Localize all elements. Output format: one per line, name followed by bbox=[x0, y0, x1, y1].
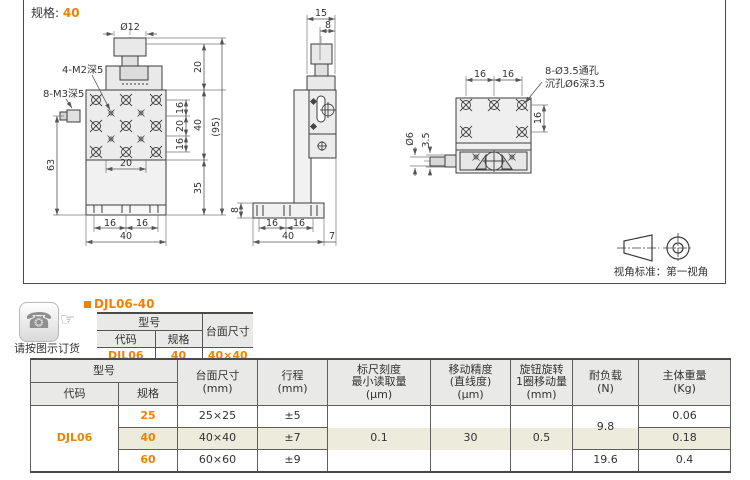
col-header-spec: 规格 bbox=[155, 331, 202, 348]
phone-order-card: ☎ bbox=[19, 302, 59, 342]
hole-note: 8-Ø3.5通孔 bbox=[545, 65, 599, 77]
bullet-square-icon bbox=[84, 301, 91, 308]
projection-note: 视角标准：第一视角 bbox=[614, 265, 709, 278]
dim-label: 16 bbox=[533, 112, 544, 124]
phone-icon: ☎ bbox=[25, 311, 52, 333]
col-header-scale: 标尺刻度 最小读取量 (μm) bbox=[328, 359, 431, 406]
dim-label: 16 bbox=[104, 218, 116, 229]
col-header-model: 型号 bbox=[97, 313, 202, 331]
dim-label: 8-M3深5 bbox=[43, 88, 84, 100]
col-header-spec: 规格 bbox=[119, 383, 178, 406]
col-header-stroke: 行程 (mm) bbox=[258, 359, 328, 406]
dim-label: 4-M2深5 bbox=[62, 64, 103, 76]
dim-label: 16 bbox=[175, 138, 186, 150]
technical-drawing-panel: 规格: 40 bbox=[23, 0, 726, 284]
order-title-text: DJL06-40 bbox=[94, 297, 154, 311]
table-row: 型号 台面尺寸 bbox=[97, 313, 253, 331]
dim-label: 35 bbox=[193, 182, 204, 194]
dim-label: Ø6 bbox=[405, 132, 416, 146]
order-title: DJL06-40 bbox=[84, 297, 154, 311]
cell-weight: 0.4 bbox=[639, 450, 731, 473]
first-angle-symbol: 视角标准：第一视角 bbox=[614, 233, 709, 278]
cell-weight: 0.06 bbox=[639, 406, 731, 428]
table-header-row: 型号 台面尺寸 (mm) 行程 (mm) 标尺刻度 最小读取量 (μm) 移动精… bbox=[31, 359, 731, 383]
col-header-load: 耐负载 (N) bbox=[573, 359, 639, 406]
cell-spec: 25 bbox=[119, 406, 178, 428]
dim-label: Ø12 bbox=[120, 22, 140, 33]
dim-label: 16 bbox=[266, 218, 278, 229]
cell-stroke: ±5 bbox=[258, 406, 328, 428]
dim-label: 40 bbox=[120, 231, 132, 242]
catalog-page: 规格: 40 bbox=[0, 0, 750, 480]
cell-knob: 0.5 bbox=[511, 406, 573, 473]
engineering-drawing: 4-M2深5 8-M3深5 Ø12 bbox=[24, 0, 727, 284]
cell-weight: 0.18 bbox=[639, 428, 731, 450]
dim-label: 40 bbox=[193, 119, 204, 131]
dim-label: 15 bbox=[315, 8, 327, 19]
cell-stroke: ±7 bbox=[258, 428, 328, 450]
col-header-knob: 旋钮旋转 1圈移动量 (mm) bbox=[511, 359, 573, 406]
dim-label: 3.5 bbox=[421, 132, 432, 147]
table-row-25: DJL06 25 25×25 ±5 0.1 30 0.5 9.8 0.06 bbox=[31, 406, 731, 428]
cell-load: 19.6 bbox=[573, 450, 639, 473]
dim-label: (95) bbox=[211, 117, 222, 137]
col-header-code: 代码 bbox=[31, 383, 119, 406]
order-note: 请按图示订货 bbox=[14, 340, 80, 356]
hole-note: 沉孔Ø6深3.5 bbox=[545, 77, 605, 90]
dim-label: 8 bbox=[230, 207, 241, 213]
dim-label: 20 bbox=[193, 61, 204, 73]
cell-spec: 40 bbox=[119, 428, 178, 450]
cell-scale: 0.1 bbox=[328, 406, 431, 473]
cell-precision: 30 bbox=[431, 406, 511, 473]
cell-load: 9.8 bbox=[573, 406, 639, 450]
dim-label: 16 bbox=[474, 69, 486, 80]
dim-label: 8 bbox=[325, 20, 331, 31]
dim-label: 16 bbox=[175, 102, 186, 114]
col-header-size: 台面尺寸 (mm) bbox=[178, 359, 258, 406]
cell-size: 40×40 bbox=[178, 428, 258, 450]
dim-label: 20 bbox=[175, 120, 186, 132]
dim-label: 40 bbox=[282, 231, 294, 242]
col-header-code: 代码 bbox=[97, 331, 155, 348]
col-header-precision: 移动精度 (直线度) (μm) bbox=[431, 359, 511, 406]
cell-size: 25×25 bbox=[178, 406, 258, 428]
dim-label: 16 bbox=[293, 218, 305, 229]
dim-label: 16 bbox=[136, 218, 148, 229]
spec-table: 型号 台面尺寸 (mm) 行程 (mm) 标尺刻度 最小读取量 (μm) 移动精… bbox=[30, 358, 731, 473]
pointing-hand-icon: ☞ bbox=[60, 310, 75, 330]
cell-size: 60×60 bbox=[178, 450, 258, 473]
col-header-weight: 主体重量 (Kg) bbox=[639, 359, 731, 406]
dim-label: 16 bbox=[502, 69, 514, 80]
front-view: 4-M2深5 8-M3深5 Ø12 bbox=[43, 22, 226, 246]
side-view: 15 8 8 16 16 40 7 bbox=[230, 8, 336, 246]
cell-code: DJL06 bbox=[31, 406, 119, 473]
top-view: 16 16 16 8-Ø3.5通孔 沉孔Ø6深3.5 Ø6 3.5 bbox=[405, 65, 605, 176]
cell-stroke: ±9 bbox=[258, 450, 328, 473]
dim-label: 20 bbox=[120, 158, 132, 169]
col-header-model: 型号 bbox=[31, 359, 178, 383]
dim-label: 63 bbox=[46, 159, 57, 171]
col-header-size: 台面尺寸 bbox=[202, 313, 253, 348]
dim-label: 7 bbox=[329, 231, 335, 242]
cell-spec: 60 bbox=[119, 450, 178, 473]
